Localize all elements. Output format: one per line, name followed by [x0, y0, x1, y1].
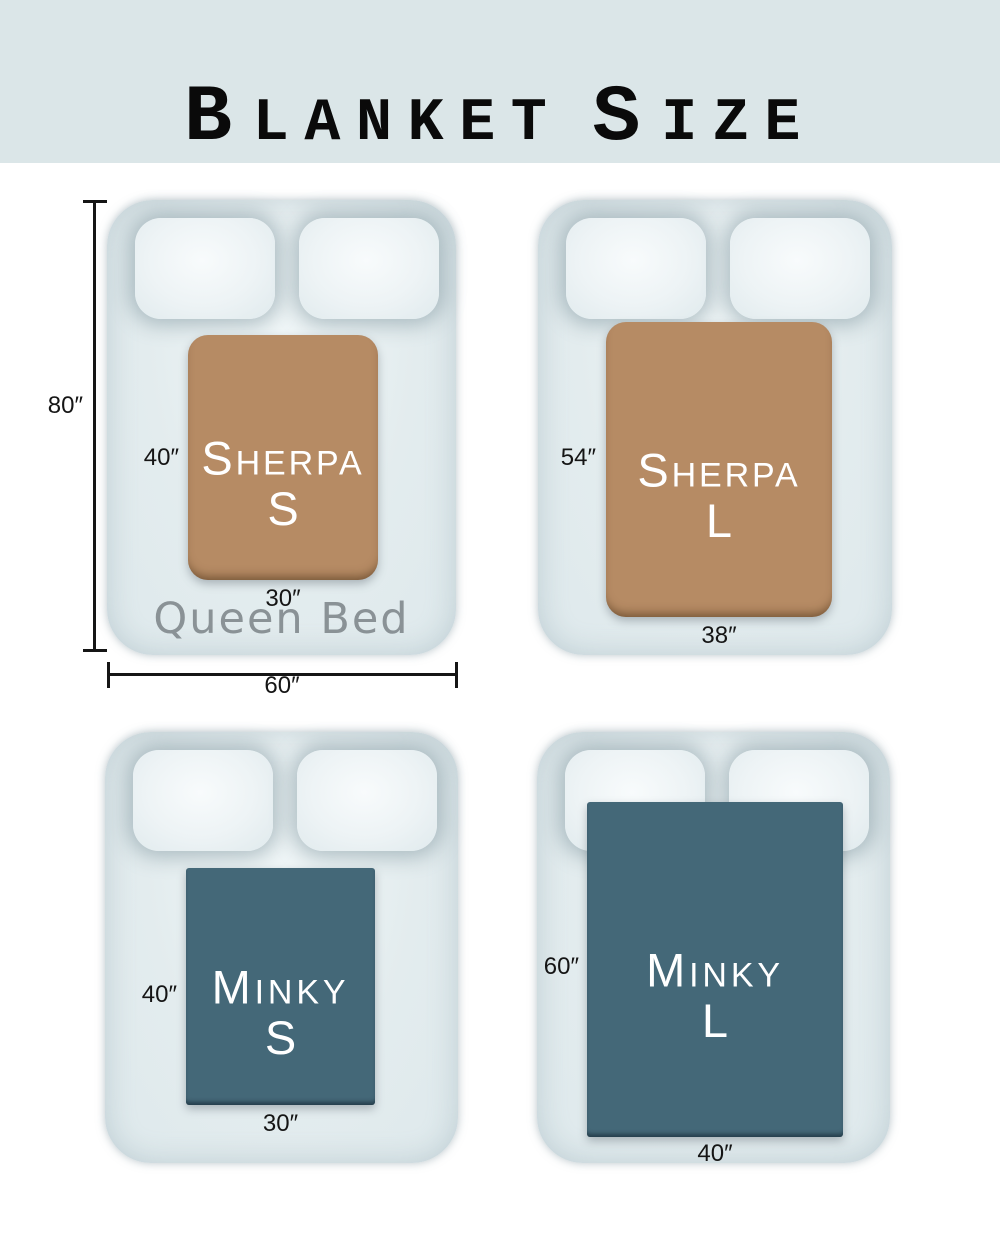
blanket-name-rest: INKY — [255, 973, 350, 1011]
blanket-name-initial: M — [646, 943, 689, 996]
blanket-size-infographic: BLANKETSIZE SHERPA S 40″ 30″ Queen Bed 8… — [0, 0, 1000, 1250]
queen-bed-sherpa-l: SHERPA L 54″ 38″ — [538, 200, 892, 655]
queen-bed-minky-l: MINKY L 60″ 40″ — [537, 732, 890, 1163]
blanket-name: SHERPA — [188, 434, 378, 481]
blanket-name-rest: INKY — [689, 956, 784, 994]
title-word2-rest: IZE — [661, 90, 816, 158]
blanket-height-label: 40″ — [109, 446, 179, 470]
queen-bed-label: Queen Bed — [107, 598, 456, 641]
blanket-name-initial: M — [212, 960, 255, 1013]
blanket-minky-l: MINKY L — [587, 802, 843, 1137]
blanket-size-letter: S — [188, 485, 378, 532]
page-title: BLANKETSIZE — [184, 79, 816, 163]
queen-bed-minky-s: MINKY S 40″ 30″ — [105, 732, 458, 1163]
blanket-width-label: 40″ — [587, 1142, 843, 1166]
bed-height-dimension-line — [83, 200, 107, 652]
blanket-name: SHERPA — [606, 446, 832, 493]
pillow-left — [133, 750, 273, 851]
blanket-sherpa-l: SHERPA L — [606, 322, 832, 617]
blanket-minky-s: MINKY S — [186, 868, 375, 1105]
blanket-sherpa-s: SHERPA S — [188, 335, 378, 580]
blanket-width-label: 38″ — [606, 624, 832, 648]
title-word1-initial: B — [184, 73, 253, 164]
bed-width-label: 60″ — [107, 674, 457, 698]
pillow-left — [566, 218, 706, 319]
title-word2-initial: S — [592, 73, 661, 164]
dimension-bar — [93, 200, 96, 652]
title-word1-rest: LANKET — [253, 90, 563, 158]
dimension-cap — [83, 649, 107, 652]
blanket-height-label: 54″ — [538, 446, 596, 470]
queen-bed-sherpa-s: SHERPA S 40″ 30″ Queen Bed 80″ 60″ — [107, 200, 456, 655]
blanket-name-initial: S — [201, 431, 235, 484]
blanket-name-rest: HERPA — [236, 444, 365, 482]
pillow-right — [297, 750, 437, 851]
header-banner: BLANKETSIZE — [0, 0, 1000, 163]
blanket-name: MINKY — [587, 946, 843, 993]
pillow-right — [299, 218, 439, 319]
blanket-width-label: 30″ — [186, 1112, 375, 1136]
blanket-name: MINKY — [186, 963, 375, 1010]
pillow-left — [135, 218, 275, 319]
blanket-name-initial: S — [637, 443, 671, 496]
pillow-right — [730, 218, 870, 319]
blanket-height-label: 60″ — [523, 955, 579, 979]
blanket-size-letter: L — [606, 497, 832, 544]
blanket-size-letter: S — [186, 1014, 375, 1061]
blanket-name-rest: HERPA — [672, 456, 801, 494]
blanket-height-label: 40″ — [107, 983, 177, 1007]
bed-height-label: 80″ — [39, 394, 83, 418]
blanket-size-letter: L — [587, 997, 843, 1044]
